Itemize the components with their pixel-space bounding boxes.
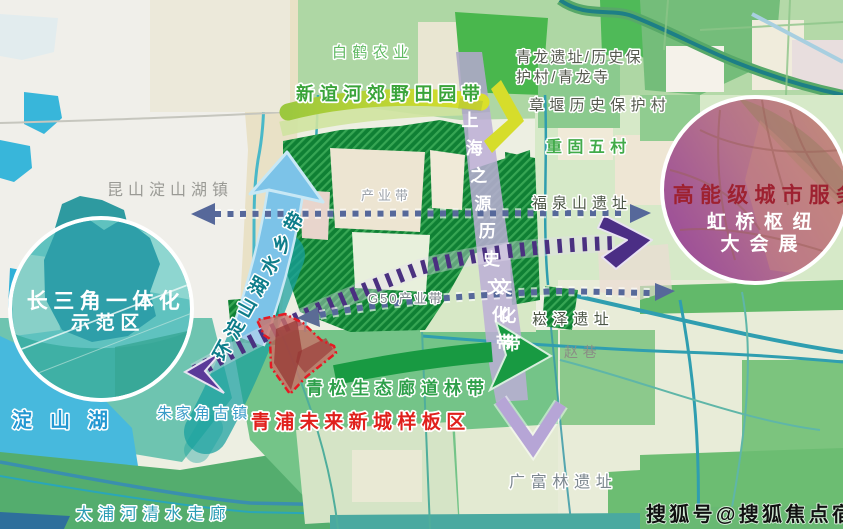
svg-text:青龙遗址/历史保: 青龙遗址/历史保 xyxy=(516,49,643,66)
svg-text:广富林遗址: 广富林遗址 xyxy=(509,473,618,491)
svg-text:福泉山遗址: 福泉山遗址 xyxy=(532,195,632,212)
svg-text:大会展: 大会展 xyxy=(720,232,807,255)
svg-text:赵巷: 赵巷 xyxy=(564,344,601,360)
svg-text:产业带: 产业带 xyxy=(361,188,412,203)
svg-text:章堰历史保护村: 章堰历史保护村 xyxy=(529,96,671,114)
svg-text:护村/青龙寺: 护村/青龙寺 xyxy=(516,69,611,86)
svg-text:淀山湖: 淀山湖 xyxy=(12,408,126,432)
svg-text:高能级城市服务: 高能级城市服务 xyxy=(673,183,843,207)
svg-text:带: 带 xyxy=(496,332,513,352)
svg-text:G50产业带: G50产业带 xyxy=(368,291,444,306)
svg-text:上: 上 xyxy=(462,111,479,130)
svg-text:太浦河清水走廊: 太浦河清水走廊 xyxy=(76,505,232,523)
svg-text:文: 文 xyxy=(487,277,505,297)
svg-text:崧泽遗址: 崧泽遗址 xyxy=(532,311,614,328)
svg-text:虹桥枢纽: 虹桥枢纽 xyxy=(707,210,821,233)
svg-text:新谊河郊野田园带: 新谊河郊野田园带 xyxy=(296,83,486,104)
svg-text:化: 化 xyxy=(492,305,509,325)
svg-text:昆山淀山湖镇: 昆山淀山湖镇 xyxy=(107,181,233,199)
svg-text:重固五村: 重固五村 xyxy=(546,137,632,156)
svg-text:史: 史 xyxy=(483,249,501,269)
svg-text:搜狐号@搜狐焦点宿州站: 搜狐号@搜狐焦点宿州站 xyxy=(646,502,843,526)
svg-text:青松生态廊道林带: 青松生态廊道林带 xyxy=(306,378,490,398)
svg-text:源: 源 xyxy=(474,193,491,213)
svg-text:之: 之 xyxy=(470,166,487,186)
svg-text:长三角一体化: 长三角一体化 xyxy=(27,289,185,313)
svg-text:示范区: 示范区 xyxy=(71,311,145,334)
svg-text:海: 海 xyxy=(466,138,483,158)
svg-text:朱家角古镇: 朱家角古镇 xyxy=(157,405,251,422)
svg-text:白鹤农业: 白鹤农业 xyxy=(332,44,414,61)
svg-text:青浦未来新城样板区: 青浦未来新城样板区 xyxy=(251,410,471,433)
svg-text:历: 历 xyxy=(479,222,496,241)
